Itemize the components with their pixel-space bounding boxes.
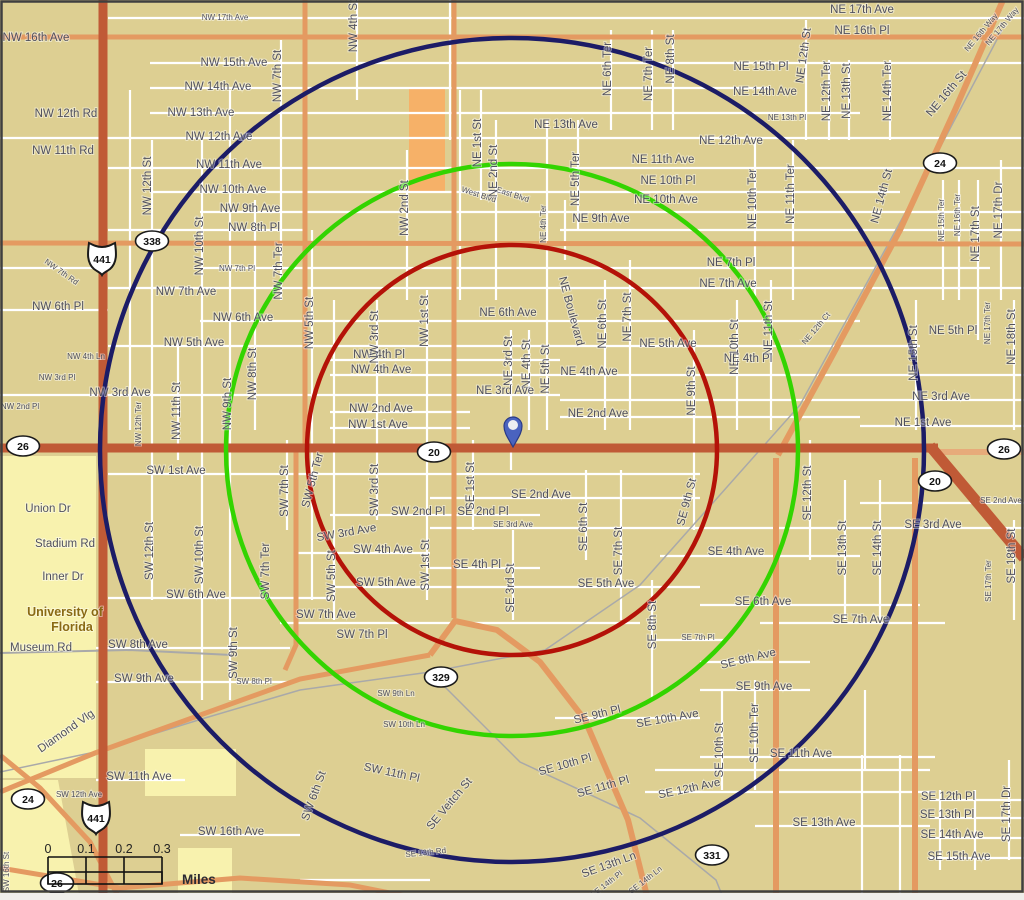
- street-label: NE 5th Ave: [639, 338, 696, 350]
- street-label: NE 9th St: [686, 366, 698, 416]
- street-label: SE 12th St: [802, 465, 814, 521]
- route-shield-338: 338: [136, 231, 169, 251]
- street-label: NE 13th St: [841, 62, 853, 118]
- street-label: NW 12th Ter: [134, 402, 143, 447]
- street-label: SW 4th Ave: [353, 544, 413, 556]
- map-canvas[interactable]: NW 17th AveNW 16th AveNW 15th AveNW 7th …: [0, 0, 1024, 900]
- bottom-margin: [0, 893, 1024, 900]
- street-label: NE 15th St: [908, 324, 920, 380]
- route-number: 331: [703, 850, 721, 862]
- route-number: 26: [17, 441, 29, 453]
- street-label: NE 17th Ave: [830, 4, 894, 16]
- street-label: SE 2nd Ave: [511, 489, 571, 501]
- street-label: NE 17th Ter: [983, 302, 992, 344]
- street-label: NE 4th Pl: [724, 353, 773, 365]
- street-label: SW 10th St: [194, 525, 206, 584]
- street-label: SW 5th Ave: [356, 577, 416, 589]
- street-label: NE 7th Pl: [707, 257, 756, 269]
- street-label: NW 11th Rd: [32, 145, 94, 157]
- street-label: NW 3rd St: [369, 310, 381, 364]
- street-label: NW 17th Ave: [202, 13, 249, 22]
- street-label: NW 2nd Ave: [349, 403, 413, 415]
- street-label: NE 8th St: [665, 34, 677, 84]
- street-label: NE 11th St: [763, 300, 775, 356]
- place-label: Florida: [51, 620, 94, 634]
- street-label: NW 15th Ave: [201, 57, 268, 69]
- street-label: SE 15th Ave: [927, 851, 990, 863]
- route-shield-20: 20: [919, 471, 952, 491]
- street-label: SE 4th Pl: [453, 559, 501, 571]
- street-label: SE 18th St: [1006, 528, 1018, 584]
- street-label: NE 15th Pl: [734, 61, 789, 73]
- street-label: NE 17th St: [970, 205, 982, 261]
- street-label: SE 12th Pl: [921, 791, 975, 803]
- street-label: NE 4th St: [521, 339, 533, 389]
- route-number: 441: [87, 813, 105, 825]
- street-label: SE 9th Ave: [736, 681, 793, 693]
- street-label: SW 16th St: [2, 851, 11, 892]
- street-label: SW 10th Ln: [383, 720, 425, 729]
- street-label: NE 10th St: [729, 318, 741, 374]
- street-label: NE 2nd St: [488, 144, 500, 197]
- street-label: NE 5th Pl: [929, 325, 978, 337]
- route-number: 24: [22, 794, 34, 806]
- street-label: NW 8th St: [247, 347, 259, 400]
- street-label: NW 5th St: [304, 296, 316, 349]
- scale-value: 0.2: [115, 842, 132, 856]
- route-number: 24: [934, 158, 946, 170]
- street-label: NW 7th St: [272, 49, 284, 102]
- street-label: NW 4th St: [348, 0, 360, 52]
- street-label: NW 7th Ter: [273, 242, 285, 299]
- street-label: SW 7th St: [279, 464, 291, 517]
- street-label: SE 5th Ave: [578, 578, 635, 590]
- street-label: NW 3rd Ave: [89, 387, 150, 399]
- street-label: NW 4th Ln: [67, 352, 105, 361]
- route-shield-24: 24: [924, 153, 957, 173]
- street-label: SE 1st St: [465, 461, 477, 510]
- street-label: NE 16th Ter: [953, 194, 962, 236]
- street-label: SW 16th Ave: [198, 826, 264, 838]
- route-shield-331: 331: [696, 845, 729, 865]
- street-label: NE 5th Ter: [570, 152, 582, 206]
- street-label: SE 6th St: [578, 502, 590, 551]
- street-label: SE 8th St: [647, 600, 659, 649]
- street-label: NE 10th Pl: [641, 175, 696, 187]
- street-label: SW 2nd Pl: [391, 506, 445, 518]
- street-label: NE 18th St: [1006, 308, 1018, 364]
- street-label: SW 7th Ter: [260, 542, 272, 599]
- street-label: NE 7th St: [622, 292, 634, 342]
- route-shield-20: 20: [418, 442, 451, 462]
- street-label: SE 2nd Ave: [980, 496, 1022, 505]
- street-label: SW 8th Pl: [236, 677, 272, 686]
- street-label: NW 5th Ave: [164, 337, 225, 349]
- route-number: 20: [428, 447, 440, 459]
- street-label: SW 1st St: [420, 539, 432, 591]
- street-label: NE 17th Dr: [993, 181, 1005, 238]
- street-label: SW 1st Ave: [146, 465, 205, 477]
- street-label: NW 14th Ave: [185, 81, 252, 93]
- route-number: 441: [93, 254, 111, 266]
- street-label: SE 6th Ave: [735, 596, 792, 608]
- pin-center-dot: [508, 420, 518, 430]
- route-shield-26: 26: [41, 873, 74, 893]
- scale-value: 0.1: [77, 842, 94, 856]
- street-label: NE 3rd Ave: [476, 385, 534, 397]
- street-label: SE 11th Ave: [770, 748, 832, 760]
- route-number: 26: [998, 444, 1010, 456]
- street-label: NE 11th Ave: [632, 154, 695, 166]
- street-label: NE 15th Ter: [937, 199, 946, 241]
- street-label: NW 4th Ave: [351, 364, 412, 376]
- street-label: NW 7th Ave: [156, 286, 217, 298]
- place-label: University of: [27, 605, 104, 619]
- street-label: SE 10th St: [714, 722, 726, 778]
- street-label: NE 12th Ter: [821, 61, 833, 122]
- route-number: 338: [143, 236, 161, 248]
- street-label: NW 13th Ave: [168, 107, 235, 119]
- street-label: NE 1st St: [472, 118, 484, 167]
- street-label: NW 11th Ave: [196, 159, 262, 171]
- street-label: SW 12th St: [144, 521, 156, 580]
- street-label: SE 13th Ave: [792, 817, 855, 829]
- street-label: NE 13th Ave: [534, 119, 598, 131]
- street-label: NE 1st Ave: [895, 417, 952, 429]
- street-label: Inner Dr: [42, 571, 84, 583]
- street-label: NW 10th St: [194, 216, 206, 276]
- street-label: NW 6th Pl: [32, 301, 84, 313]
- street-label: NW 1st Ave: [348, 419, 408, 431]
- street-label: SE 17th Dr: [1001, 786, 1013, 842]
- street-label: NW 3rd Pl: [39, 373, 76, 382]
- map-frame: NW 17th AveNW 16th AveNW 15th AveNW 7th …: [0, 0, 1024, 900]
- street-label: SE 7th Ave: [833, 614, 890, 626]
- street-label: NW 10th Ave: [200, 184, 267, 196]
- street-label: NW 2nd Pl: [1, 402, 39, 411]
- street-label: SW 6th Ave: [166, 589, 226, 601]
- street-label: SE 7th St: [613, 526, 625, 575]
- street-label: NW 9th Ave: [220, 203, 281, 215]
- street-label: NE 2nd Ave: [568, 408, 629, 420]
- street-label: SE 4th Ave: [708, 546, 765, 558]
- route-shield-26: 26: [7, 436, 40, 456]
- street-label: NW 9th St: [222, 377, 234, 430]
- street-label: SW 9th St: [228, 626, 240, 679]
- street-label: Museum Rd: [10, 642, 72, 654]
- scale-value: 0: [45, 842, 52, 856]
- street-label: SE 13th St: [837, 520, 849, 576]
- street-label: NE 14th Ave: [733, 86, 797, 98]
- street-label: NW 1st St: [419, 294, 431, 347]
- route-number: 20: [929, 476, 941, 488]
- street-label: NE 9th Ave: [572, 213, 629, 225]
- street-label: SE 13th Pl: [920, 809, 974, 821]
- street-label: SE 7th Pl: [681, 633, 715, 642]
- street-label: NE 10th Ave: [634, 194, 698, 206]
- street-label: NW 2nd St: [399, 179, 411, 235]
- street-label: Stadium Rd: [35, 538, 95, 550]
- street-label: NW 8th Pl: [228, 222, 280, 234]
- street-label: NE 3rd Ave: [912, 391, 970, 403]
- street-label: NE 3rd St: [503, 335, 515, 386]
- street-label: NW 12th St: [142, 156, 154, 216]
- street-label: SE 3rd St: [505, 563, 517, 613]
- street-label: SW 11th Ave: [106, 771, 171, 783]
- street-label: NW 12th Rd: [35, 108, 98, 120]
- street-label: NE 16th Pl: [835, 25, 890, 37]
- route-shield-24: 24: [12, 789, 45, 809]
- street-label: NE 4th Ter: [539, 205, 548, 243]
- street-label: SW 8th Ave: [108, 639, 168, 651]
- street-label: SW 9th Ln: [377, 689, 414, 698]
- route-shield-329: 329: [425, 667, 458, 687]
- scale-value: 0.3: [153, 842, 170, 856]
- street-label: NW 16th Ave: [3, 32, 70, 44]
- street-label: NE 7th Ter: [643, 47, 655, 101]
- street-label: NE 12th Ave: [699, 135, 763, 147]
- street-label: SE 3rd Ave: [493, 520, 533, 529]
- street-label: SW 9th Ave: [114, 673, 174, 685]
- street-label: NE 14th Ter: [882, 61, 894, 122]
- street-label: NE 11th Ter: [785, 164, 797, 224]
- street-label: SW 5th St: [326, 549, 338, 602]
- street-label: NE 6th St: [597, 299, 609, 349]
- street-label: Union Dr: [25, 503, 71, 515]
- street-label: NE 6th Ter: [602, 42, 614, 96]
- street-label: SE 14th St: [872, 520, 884, 576]
- street-label: SW 7th Ave: [296, 609, 356, 621]
- street-label: NW 7th Pl: [219, 264, 255, 273]
- street-label: NE 6th Ave: [479, 307, 536, 319]
- street-label: SE 17th Ter: [984, 560, 993, 602]
- scale-unit: Miles: [182, 872, 216, 887]
- street-label: NW 12th Ave: [186, 131, 253, 143]
- street-label: SE 10th Ter: [749, 703, 761, 763]
- route-number: 329: [432, 672, 450, 684]
- street-label: NW 11th St: [171, 381, 183, 440]
- route-shield-26: 26: [988, 439, 1021, 459]
- street-label: NE 7th Ave: [699, 278, 756, 290]
- street-label: NW 6th Ave: [213, 312, 274, 324]
- street-label: SW 12th Ave: [56, 790, 103, 799]
- street-label: NE 5th St: [540, 344, 552, 394]
- street-label: SW 3rd St: [369, 463, 381, 516]
- street-label: SE 14th Ave: [920, 829, 983, 841]
- street-label: NE 10th Ter: [747, 169, 759, 230]
- street-label: SE 3rd Ave: [904, 519, 961, 531]
- street-label: NE 4th Ave: [560, 366, 617, 378]
- street-label: NE 13th Pl: [768, 113, 806, 122]
- street-label: SW 7th Pl: [336, 629, 387, 641]
